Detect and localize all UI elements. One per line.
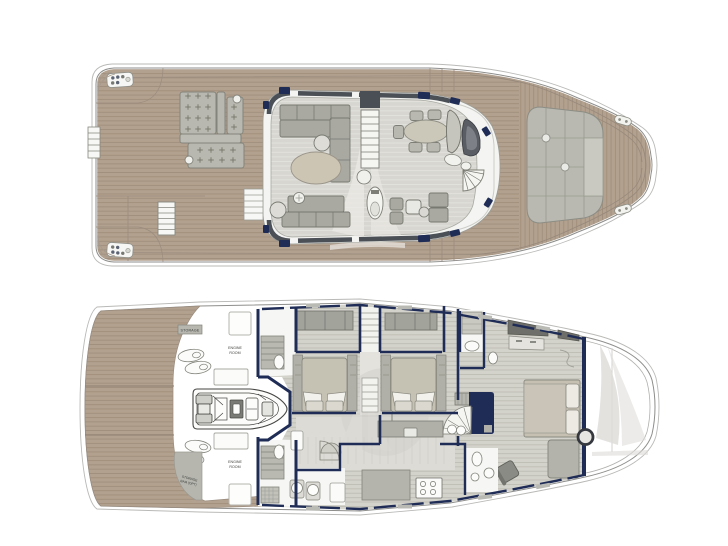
svg-text:ROOM: ROOM	[229, 465, 240, 469]
svg-text:ROOM: ROOM	[229, 351, 240, 355]
svg-text:ENGINE: ENGINE	[228, 346, 242, 350]
svg-text:ENGINE: ENGINE	[228, 460, 242, 464]
svg-text:STORAGE: STORAGE	[181, 329, 200, 333]
